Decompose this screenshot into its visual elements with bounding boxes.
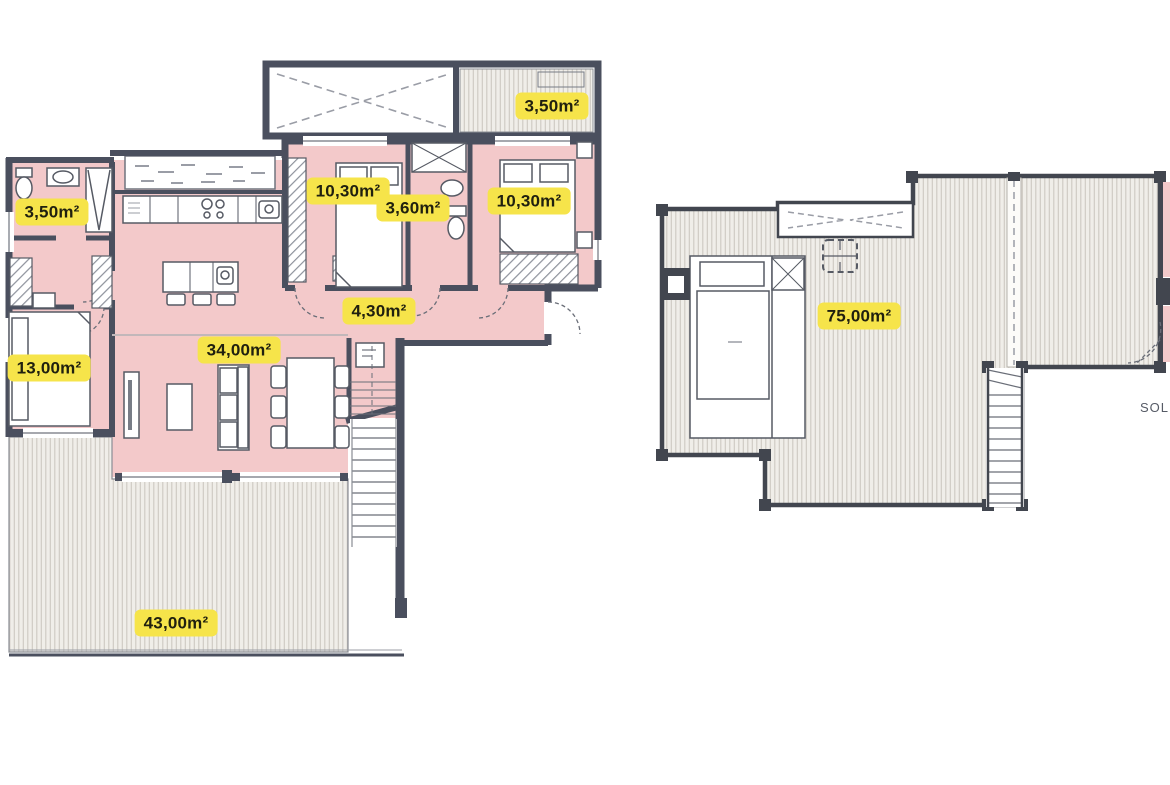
hob-icon [202,199,212,209]
area-label-upper-terrace: 3,50m² [515,93,588,120]
main-floor-plan [4,64,603,655]
kitchen-counter [123,196,282,223]
area-label-bedroom-2: 10,30m² [488,188,571,215]
toilet-icon [16,177,32,199]
stool-icon [167,294,185,305]
staircase-solarium [986,368,1024,507]
floor-plan-page: 3,50m² 10,30m² 3,60m² 10,30m² 3,50m² 4,3… [0,0,1170,785]
dining-table-icon [271,358,349,448]
deck-divider [1007,178,1021,367]
nightstand-icon [577,142,592,158]
area-label-terrace: 43,00m² [135,610,218,637]
toilet-tank [16,168,32,177]
skylight-strip [778,203,913,237]
kitchen-window-band [125,156,275,189]
sofa-icon [218,365,249,450]
area-label-solarium: 75,00m² [818,303,901,330]
chair-icon [271,366,286,388]
area-label-bathroom: 3,60m² [376,195,449,222]
solarium-text-label: SOL [1140,400,1169,415]
grille-unit [538,72,584,87]
area-label-hallway: 4,30m² [342,298,415,325]
toilet-icon [448,217,464,239]
solarium-plan [656,171,1170,511]
area-label-bathroom-left: 3,50m² [15,199,88,226]
coffee-table-icon [167,384,192,430]
kitchen-island [163,262,238,305]
area-label-living-kitchen: 34,00m² [198,337,281,364]
chimney-block [662,268,690,300]
nightstand-icon [33,293,55,308]
daybed-icon [690,256,805,438]
area-label-bedroom-3: 13,00m² [8,355,91,382]
